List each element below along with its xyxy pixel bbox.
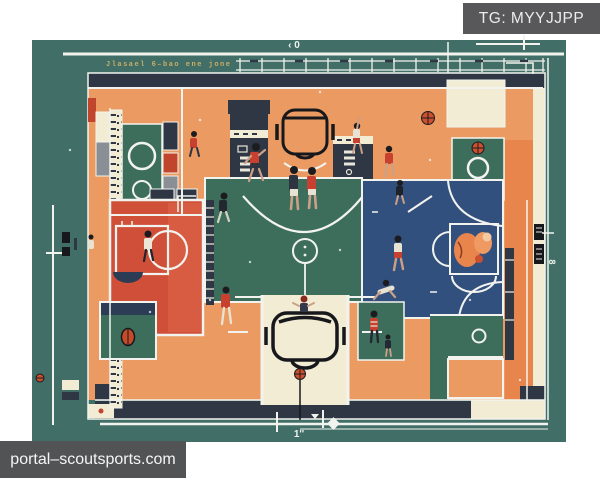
site-watermark: portal–scoutsports.com [0,441,186,478]
center-green-court [205,178,363,305]
blueprint-note: Jlasael 6–bao ene jone [106,61,231,69]
basketball-icon [36,374,44,382]
top-zero-marker: ‹ 0 [288,40,300,51]
site-url: portal–scoutsports.com [10,451,175,469]
telegram-watermark: TG: MYYJJPP [463,3,600,34]
telegram-handle: TG: MYYJJPP [479,10,584,28]
basketball-icon [422,112,435,125]
right-measure-label: 8 [547,259,557,264]
navy-court [362,180,503,318]
basketball-court-illustration: ‹ 0 Jlasael 6–bao ene jone 1'' 8 [0,0,600,480]
basketball-icon [122,329,135,346]
page: ‹ 0 Jlasael 6–bao ene jone 1'' 8 TG: MYY… [0,0,600,480]
player-figure [88,235,94,250]
basketball-icon [472,142,484,154]
bottom-measure-label: 1'' [294,429,304,440]
